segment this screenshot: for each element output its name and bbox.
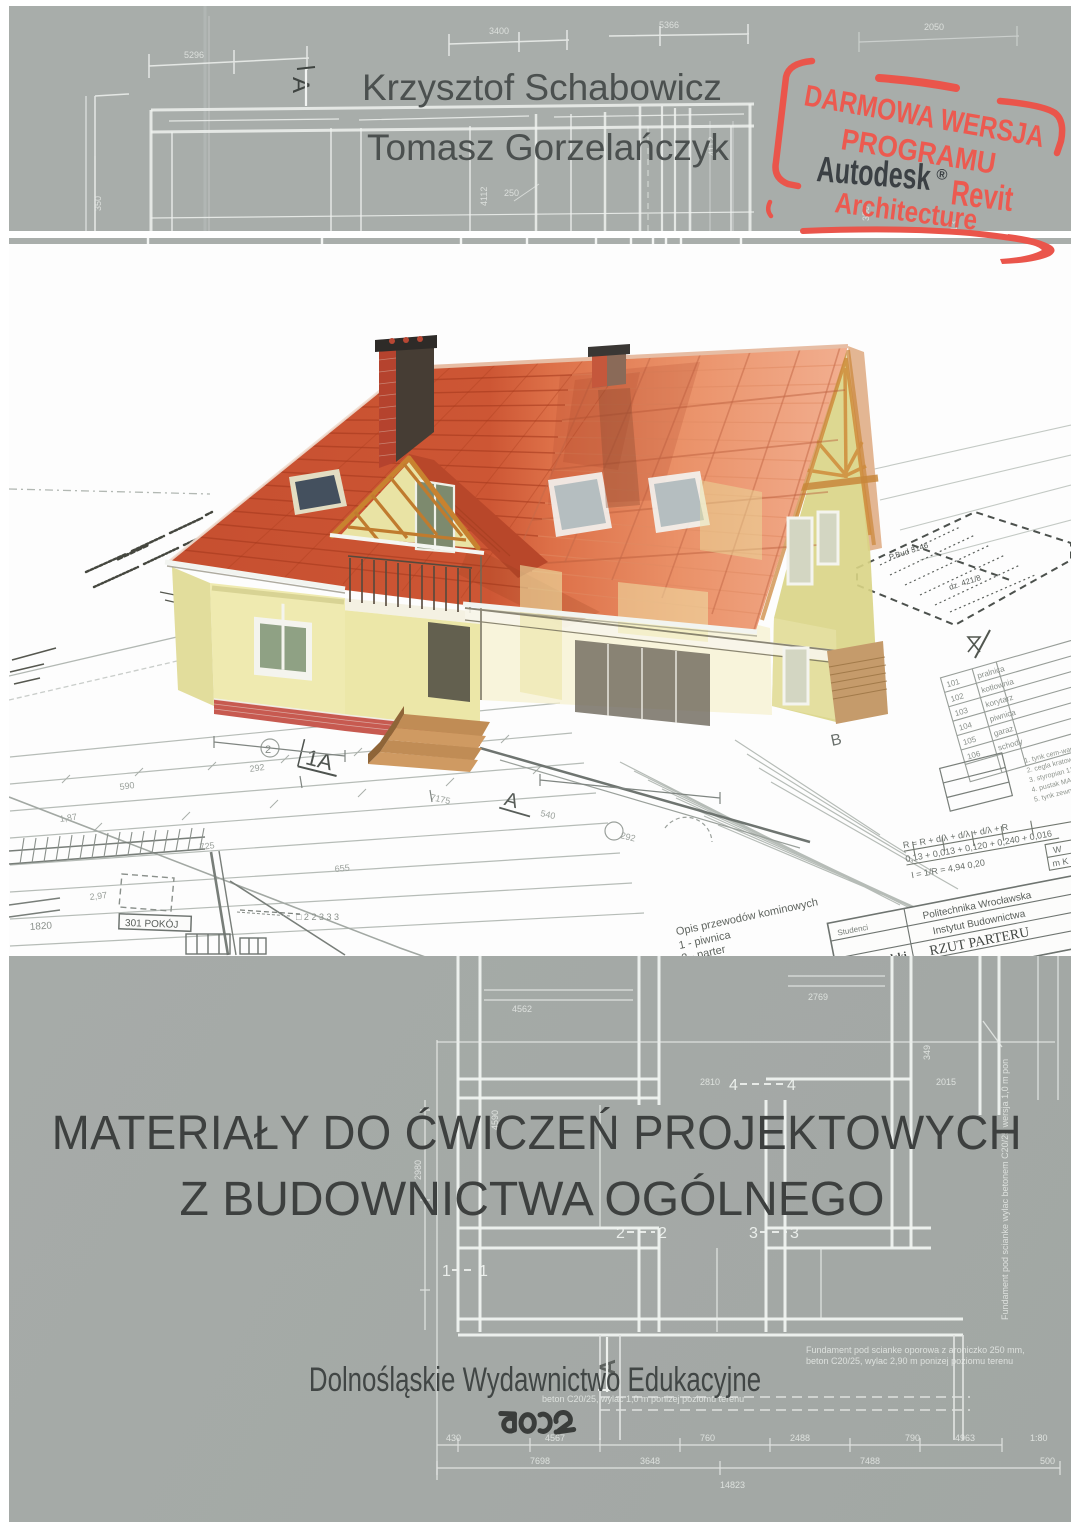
svg-text:Autodesk: Autodesk (815, 148, 933, 198)
svg-text:®: ® (936, 166, 949, 184)
